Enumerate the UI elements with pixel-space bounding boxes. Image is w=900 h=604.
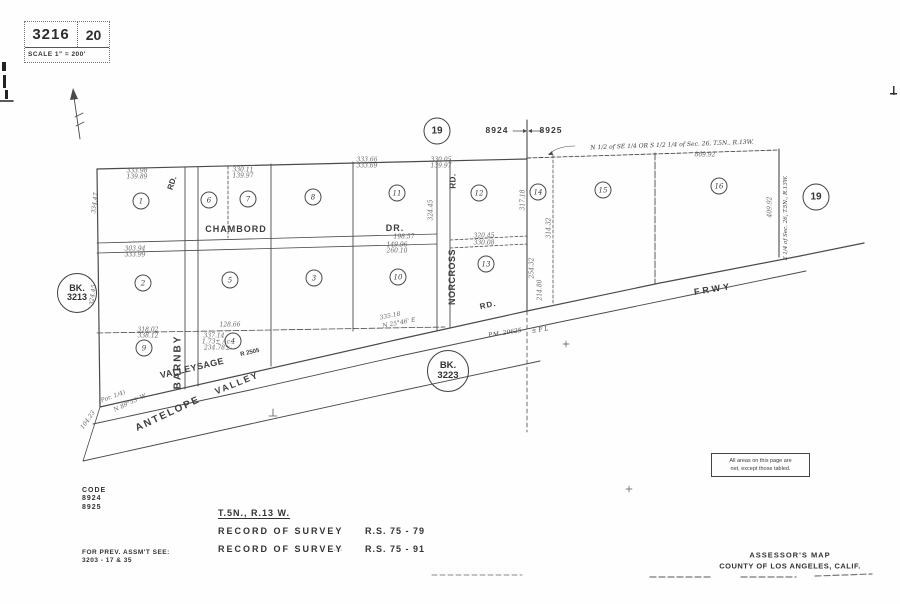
record-value-1: R.S. 75 - 79 [365, 526, 425, 536]
parcel-circle-7: 7 [240, 191, 257, 208]
dimension-label: 409.92 [767, 197, 774, 218]
county-title: COUNTY OF LOS ANGELES, CALIF. [719, 562, 861, 571]
dimension-label: 214.80 [537, 280, 544, 301]
book-ref-number: 3223 [437, 371, 458, 381]
parcel-circle-9: 9 [136, 340, 153, 357]
dimension-label: .. .. [333, 546, 343, 553]
dimension-label: 198.57 [394, 234, 415, 241]
parcel-circle-11: 11 [389, 185, 406, 202]
assessors-map-title: ASSESSOR'S MAP [749, 551, 830, 560]
dimension-label: 320.45 [474, 233, 495, 240]
street-norcross: NORCROSS [447, 249, 457, 305]
street-norcross-rd: RD. [449, 173, 458, 188]
book-number: 3216 [25, 22, 78, 47]
dimension-label: 128.66 [220, 322, 241, 329]
record-of-survey-1: RECORD OF SURVEY [218, 526, 343, 536]
dimension-label: 314.32 [546, 218, 553, 239]
dimension-label: 139.97 [233, 173, 254, 180]
road-lines [83, 243, 864, 461]
parcel-circle-4: 4 [225, 333, 242, 350]
parcel-circle-10: 10 [390, 269, 407, 286]
book-ref-3223: BK. 3223 [427, 350, 469, 392]
prev-assessment-line1: FOR PREV. ASSM'T SEE: [82, 549, 170, 557]
parcel-circle-14: 14 [530, 184, 547, 201]
parcel-circle-6: 6 [201, 192, 218, 209]
parcel-circle-16: 16 [711, 178, 728, 195]
dimension-label: 333.69 [357, 163, 378, 170]
parcel-circle-3: 3 [306, 270, 323, 287]
dimension-label: 139.89 [127, 174, 148, 181]
parcel-boundaries [83, 149, 779, 461]
scan-artifacts [0, 62, 897, 577]
dimension-label: 139.97 [431, 163, 452, 170]
book-ref-number: 3213 [67, 293, 87, 302]
code-8925: 8925 [82, 504, 106, 512]
parcel-circle-1: 1 [133, 193, 150, 210]
parcel-circle-13: 13 [478, 256, 495, 273]
dimension-label: 330.08 [474, 240, 495, 247]
map-ref-circle-top: 19 [424, 118, 451, 145]
street-chambord: CHAMBORD [205, 224, 267, 234]
north-arrow-icon [70, 88, 84, 139]
parcel-circle-15: 15 [595, 182, 612, 199]
dimension-label: 869.92 [695, 152, 716, 159]
area-note-line2: net, except those tabled. [731, 465, 791, 473]
parcel-circle-8: 8 [305, 189, 322, 206]
dimension-label: 260.10 [387, 248, 408, 255]
record-of-survey-2: RECORD OF SURVEY [218, 544, 343, 554]
assessor-map-page: 3216 20 SCALE 1" = 200' 8924 8925 19 19 … [0, 0, 900, 604]
map-ref-circle-right: 19 [803, 184, 830, 211]
section-code-right: 8925 [540, 125, 563, 135]
street-barnby: BARNBY [173, 335, 184, 390]
dimension-label: 317.18 [520, 190, 527, 211]
map-index-box: 3216 20 SCALE 1" = 200' [24, 21, 110, 63]
dimension-label: 324.45 [428, 200, 435, 221]
annotation-leader [548, 146, 575, 155]
section-code-left: 8924 [486, 125, 509, 135]
page-number: 20 [78, 22, 109, 47]
parcel-circle-2: 2 [135, 275, 152, 292]
dimension-label: 338.12 [138, 333, 159, 340]
parcel-circle-12: 12 [471, 185, 488, 202]
scale-label: SCALE 1" = 200' [25, 48, 109, 61]
record-value-2: R.S. 75 - 91 [365, 544, 425, 554]
area-note-line1: All areas on this page are [729, 457, 791, 465]
dimension-label: 333.99 [125, 252, 146, 259]
code-8924: 8924 [82, 495, 106, 503]
east-edge-annotation: E 1/4 of Sec. 26, T.5N., R.13W. [783, 176, 789, 261]
area-note-box: All areas on this page are net, except t… [711, 453, 810, 477]
dimension-label: 254.32 [529, 258, 536, 279]
prev-assessment-line2: 3203 - 17 & 35 [82, 557, 170, 565]
parcel-circle-5: 5 [222, 272, 239, 289]
township-range: T.5N., R.13 W. [218, 508, 290, 518]
street-chambord-dr: DR. [386, 223, 405, 233]
code-label: CODE [82, 487, 106, 495]
